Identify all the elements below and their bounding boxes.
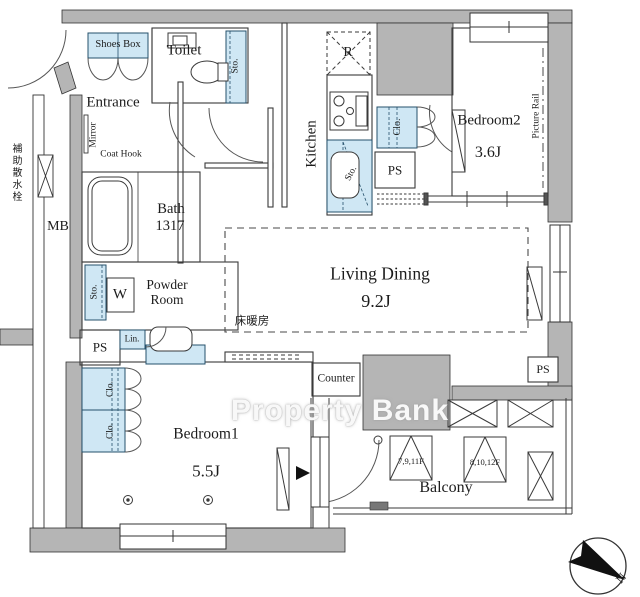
kitchen-label: Kitchen bbox=[305, 120, 320, 167]
fixture-detail-lines bbox=[102, 31, 397, 452]
compass-icon bbox=[568, 538, 626, 594]
door-direction-marker bbox=[296, 466, 310, 480]
vent-grille bbox=[377, 194, 427, 204]
powder-storage-label: Sto. bbox=[90, 284, 100, 299]
bedroom1-closet-lower bbox=[82, 410, 125, 452]
entrance-label: Entrance bbox=[86, 96, 139, 111]
bedroom1-label: Bedroom1 bbox=[173, 426, 238, 442]
washer-label: W bbox=[113, 288, 127, 303]
closet-fold-door bbox=[125, 368, 141, 389]
ac-floors-b-label: 8,10,12F bbox=[470, 458, 500, 467]
closet-fold-door bbox=[125, 410, 141, 431]
mirror-label: Mirror bbox=[89, 122, 99, 147]
sliding-partition bbox=[424, 191, 548, 207]
living-dining-label: Living Dining bbox=[330, 265, 430, 283]
downlight-dots bbox=[124, 496, 213, 505]
left-ps-label: PS bbox=[93, 341, 107, 354]
bedroom1-closet-lower-label: Clo. bbox=[106, 423, 116, 439]
bath-label: Bath bbox=[157, 202, 184, 217]
right-ps-label: PS bbox=[536, 363, 549, 375]
bedroom2-label: Bedroom2 bbox=[457, 114, 520, 129]
watermark: Property Bank bbox=[231, 394, 449, 428]
closet-fold-door bbox=[125, 431, 141, 452]
shoes-box-door bbox=[88, 58, 118, 80]
picture-rail-label: Picture Rail bbox=[532, 93, 542, 138]
sprinkler-valve-icon bbox=[38, 155, 53, 197]
refrigerator-label: R bbox=[343, 46, 352, 60]
closet-fold-door bbox=[125, 389, 141, 410]
aux-sprinkler-label: 補助散水栓 bbox=[10, 143, 20, 203]
balcony-threshold bbox=[370, 502, 388, 510]
floor-heating-label: 床暖房 bbox=[235, 316, 270, 328]
ac-floors-a-label: 7,9,11F bbox=[398, 457, 424, 466]
meter-box-recess bbox=[33, 95, 53, 528]
vanity-basin-icon bbox=[150, 327, 192, 351]
bedroom1-closet-upper bbox=[82, 368, 125, 410]
bedroom1-closet-upper-label: Clo. bbox=[106, 381, 116, 397]
coat-hook-label: Coat Hook bbox=[100, 150, 141, 160]
closet-fold-door bbox=[417, 127, 435, 147]
powder-room-label: Powder Room bbox=[138, 277, 196, 307]
floor-plan: Shoes Box Toilet Sto. Entrance Mirror Co… bbox=[0, 0, 640, 597]
toilet-label: Toilet bbox=[167, 44, 202, 59]
stove-icon bbox=[330, 92, 368, 130]
toilet-door-arc bbox=[209, 108, 263, 162]
shoes-box-label: Shoes Box bbox=[95, 40, 140, 51]
shoes-box-door bbox=[118, 58, 148, 80]
toilet-storage-label: Sto. bbox=[231, 58, 241, 73]
balcony-label: Balcony bbox=[419, 480, 472, 496]
bathtub-icon bbox=[88, 172, 138, 262]
kitchen-ps-label: PS bbox=[388, 164, 402, 177]
bedroom2-size-label: 3.6J bbox=[475, 145, 501, 161]
bath-size-label: 1317 bbox=[156, 219, 185, 234]
bedroom2-closet-label: Clo. bbox=[393, 119, 403, 136]
living-dining-size-label: 9.2J bbox=[361, 292, 391, 310]
counter-label: Counter bbox=[317, 373, 354, 385]
linen-label: Lin. bbox=[125, 335, 140, 344]
meter-box-label: MB bbox=[47, 220, 69, 234]
closet-fold-door bbox=[417, 107, 435, 127]
bedroom1-size-label: 5.5J bbox=[192, 463, 220, 480]
